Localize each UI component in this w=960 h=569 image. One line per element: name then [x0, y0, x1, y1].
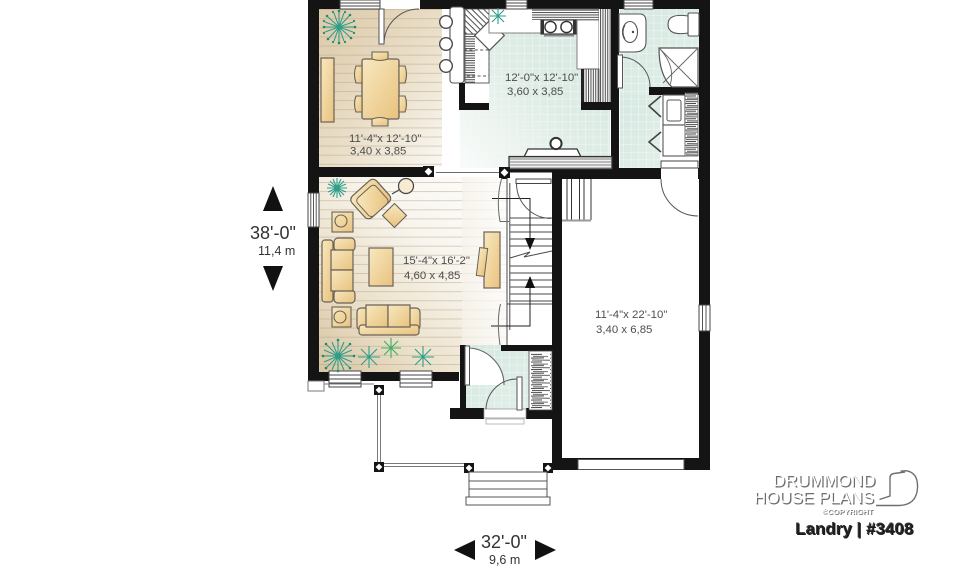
- svg-text:32'-0": 32'-0": [481, 532, 527, 552]
- svg-text:11'-4"x 22'-10": 11'-4"x 22'-10": [595, 309, 667, 321]
- svg-text:9,6 m: 9,6 m: [489, 553, 520, 567]
- svg-text:11,4 m: 11,4 m: [258, 244, 295, 258]
- svg-text:12'-0"x 12'-10": 12'-0"x 12'-10": [505, 72, 578, 84]
- svg-text:15'-4"x 16'-2": 15'-4"x 16'-2": [403, 255, 470, 267]
- svg-text:3,40 x 3,85: 3,40 x 3,85: [350, 146, 406, 158]
- svg-text:3,60 x 3,85: 3,60 x 3,85: [507, 86, 563, 98]
- svg-text:HOUSE PLANS: HOUSE PLANS: [754, 488, 874, 507]
- svg-text:38'-0": 38'-0": [250, 223, 296, 243]
- svg-text:Landry | #3408: Landry | #3408: [796, 520, 914, 539]
- svg-text:©COPYRIGHT: ©COPYRIGHT: [822, 507, 873, 516]
- svg-text:11'-4"x 12'-10": 11'-4"x 12'-10": [349, 133, 421, 145]
- svg-text:3,40 x 6,85: 3,40 x 6,85: [596, 324, 652, 336]
- svg-text:4,60 x 4,85: 4,60 x 4,85: [404, 270, 460, 282]
